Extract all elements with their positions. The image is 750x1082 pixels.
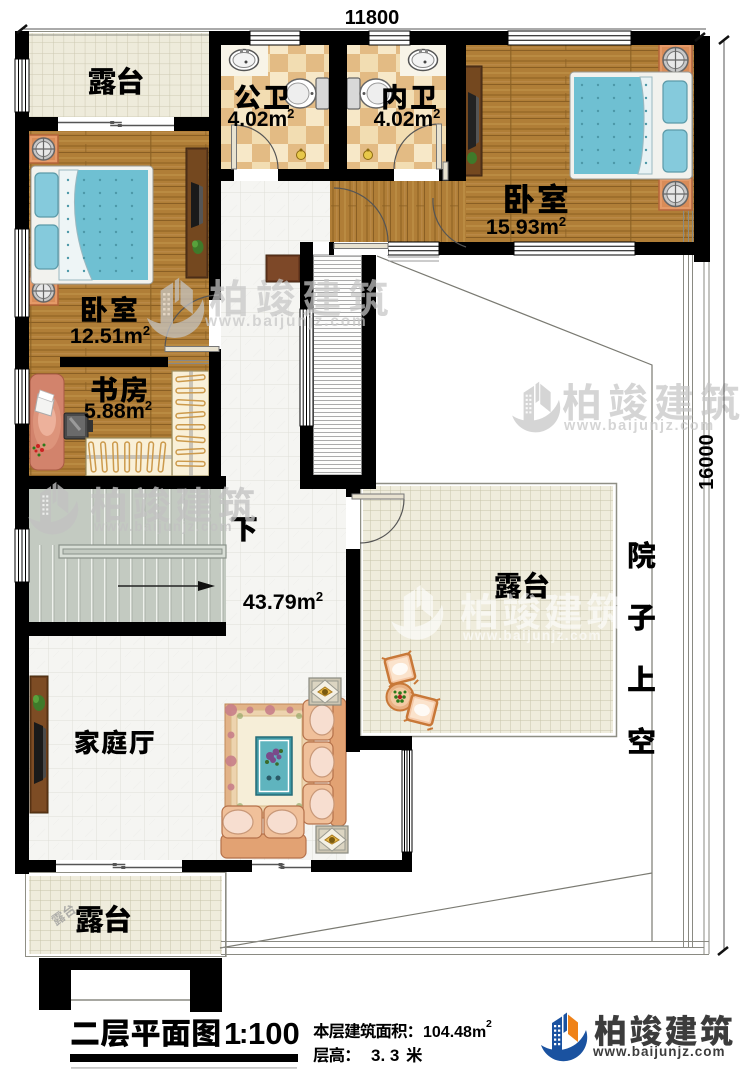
svg-text:3. 3: 3. 3 bbox=[371, 1046, 399, 1065]
svg-text:100: 100 bbox=[248, 1016, 300, 1051]
svg-text:104.48m: 104.48m bbox=[423, 1024, 486, 1041]
svg-text:16000: 16000 bbox=[696, 434, 718, 490]
svg-text:www.baijunjz.com: www.baijunjz.com bbox=[93, 519, 233, 534]
svg-text:11800: 11800 bbox=[345, 7, 400, 29]
svg-text::: : bbox=[239, 1018, 248, 1049]
svg-text:www.baijunjz.com: www.baijunjz.com bbox=[563, 418, 715, 434]
svg-text:43.79m2: 43.79m2 bbox=[243, 589, 323, 614]
svg-text:4.02m2: 4.02m2 bbox=[374, 106, 441, 131]
svg-text:5.88m2: 5.88m2 bbox=[84, 398, 152, 423]
svg-text:www.baijunjz.com: www.baijunjz.com bbox=[592, 1044, 726, 1059]
svg-text:2: 2 bbox=[486, 1018, 492, 1030]
svg-text:4.02m2: 4.02m2 bbox=[228, 106, 295, 131]
svg-text:15.93m2: 15.93m2 bbox=[486, 214, 566, 239]
svg-text:www.baijunjz.com: www.baijunjz.com bbox=[204, 313, 368, 330]
svg-text:12.51m2: 12.51m2 bbox=[70, 323, 150, 348]
svg-text:www.baijunjz.com: www.baijunjz.com bbox=[462, 628, 602, 643]
